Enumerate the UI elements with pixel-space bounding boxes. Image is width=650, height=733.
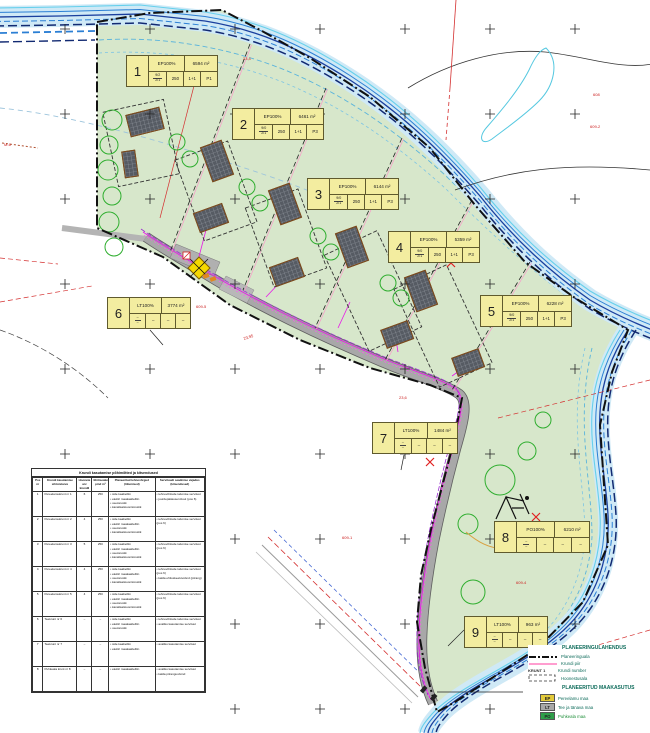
red-annotation: 609-4 bbox=[516, 580, 527, 585]
plot-label-2: 2EP100%6461 m²9/02/12501+1P3 bbox=[232, 108, 324, 140]
legend-item-building-zone: Hoonestusala bbox=[528, 674, 650, 682]
legend-item-lt: LT Tee ja tänava maa bbox=[528, 703, 650, 711]
plot-label-7: 7LT100%1484 m²––––– bbox=[372, 422, 458, 454]
plot-label-5: 5EP100%6228 m²9/02/12501+1P3 bbox=[480, 295, 572, 327]
plot-label-6: 6LT100%3774 m²––––– bbox=[107, 297, 191, 329]
red-annotation: 609-2 bbox=[590, 124, 601, 129]
boundary-line-sample bbox=[528, 654, 558, 660]
existing-road-corridor bbox=[256, 530, 430, 703]
ep-chip: EP bbox=[540, 694, 555, 702]
table-title: Krundi kasutamise põhimõtted ja kitsendu… bbox=[32, 469, 205, 477]
po-chip: PO bbox=[540, 712, 555, 720]
red-annotation: M-6 bbox=[4, 142, 12, 147]
red-annotation: 23,4 bbox=[243, 56, 252, 61]
detail-plan-map: 608609-223,4M-623,95609-523,6609-1609-4 … bbox=[0, 0, 650, 733]
building-zone-sample bbox=[528, 674, 558, 682]
red-annotation: 23,6 bbox=[399, 395, 408, 400]
red-annotation: 609-1 bbox=[342, 535, 353, 540]
land-use-table: Krundi kasutamise põhimõtted ja kitsendu… bbox=[31, 468, 206, 693]
legend-panel: PLANEERINGULAHENDUS Planeeringuala Krund… bbox=[528, 645, 650, 722]
plot-label-8: 8PO100%6210 m²––––– bbox=[494, 521, 590, 553]
red-annotation: 609-5 bbox=[196, 304, 207, 309]
plot-label-9: 9LT100%963 m²––––– bbox=[464, 616, 548, 648]
pond-outline bbox=[482, 48, 554, 142]
legend-item-plot-border: Krundi piir bbox=[528, 661, 650, 667]
legend-heading-solution: PLANEERINGULAHENDUS bbox=[562, 646, 650, 652]
lt-chip: LT bbox=[540, 703, 555, 711]
plot-label-1: 1EP100%6594 m²9/22/12501+1P1 bbox=[126, 55, 218, 87]
legend-item-po: PO Puhkeala maa bbox=[528, 712, 650, 720]
red-annotation: 23,95 bbox=[243, 333, 255, 341]
plot-border-line-sample bbox=[528, 661, 558, 667]
red-annotation: 608 bbox=[593, 92, 600, 97]
legend-heading-landuse: PLANEERITUD MAAKASUTUS bbox=[562, 686, 650, 692]
plot-label-3: 3EP100%6144 m²9/02/12501+1P3 bbox=[307, 178, 399, 210]
legend-item-ep: EP Pereelamu maa bbox=[528, 694, 650, 702]
legend-item-plot-number: KRUNT 1 Krundi number bbox=[528, 668, 650, 673]
plot-label-4: 4EP100%5359 m²9/02/12501+1P3 bbox=[388, 231, 480, 263]
legend-item-planning-area: Planeeringuala bbox=[528, 654, 650, 660]
